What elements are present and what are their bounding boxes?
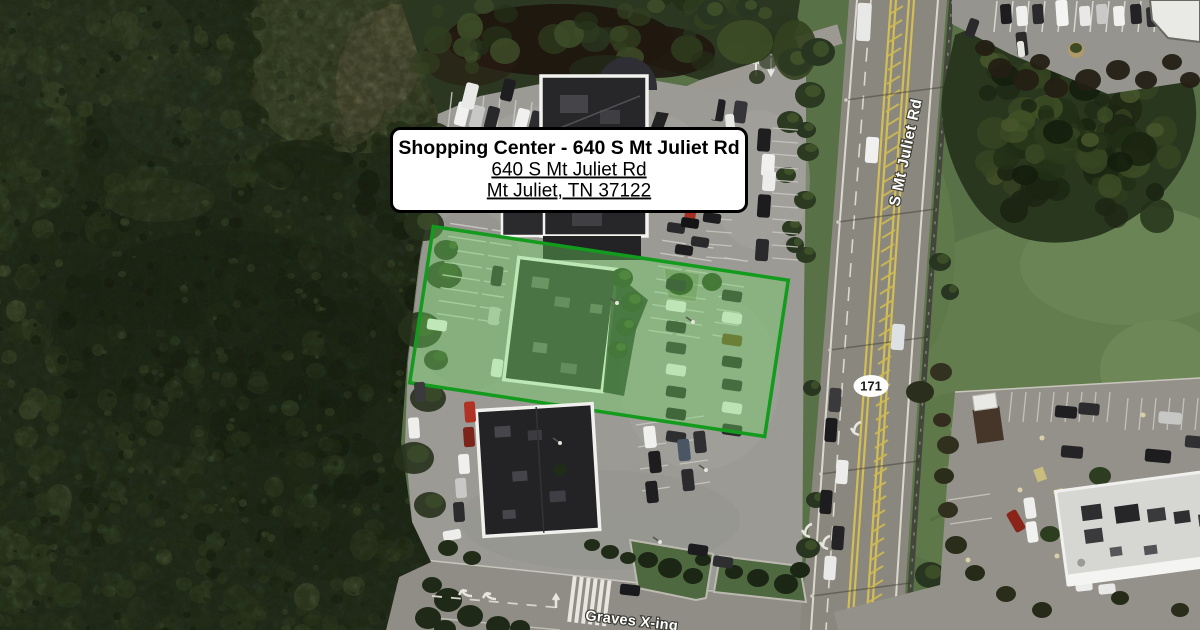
svg-text:171: 171 — [860, 379, 882, 394]
svg-text:Mt Juliet, TN 37122: Mt Juliet, TN 37122 — [487, 181, 651, 202]
svg-text:Shopping Center - 640 S Mt Jul: Shopping Center - 640 S Mt Juliet Rd — [398, 137, 739, 159]
svg-text:640 S Mt Juliet Rd: 640 S Mt Juliet Rd — [491, 160, 646, 181]
